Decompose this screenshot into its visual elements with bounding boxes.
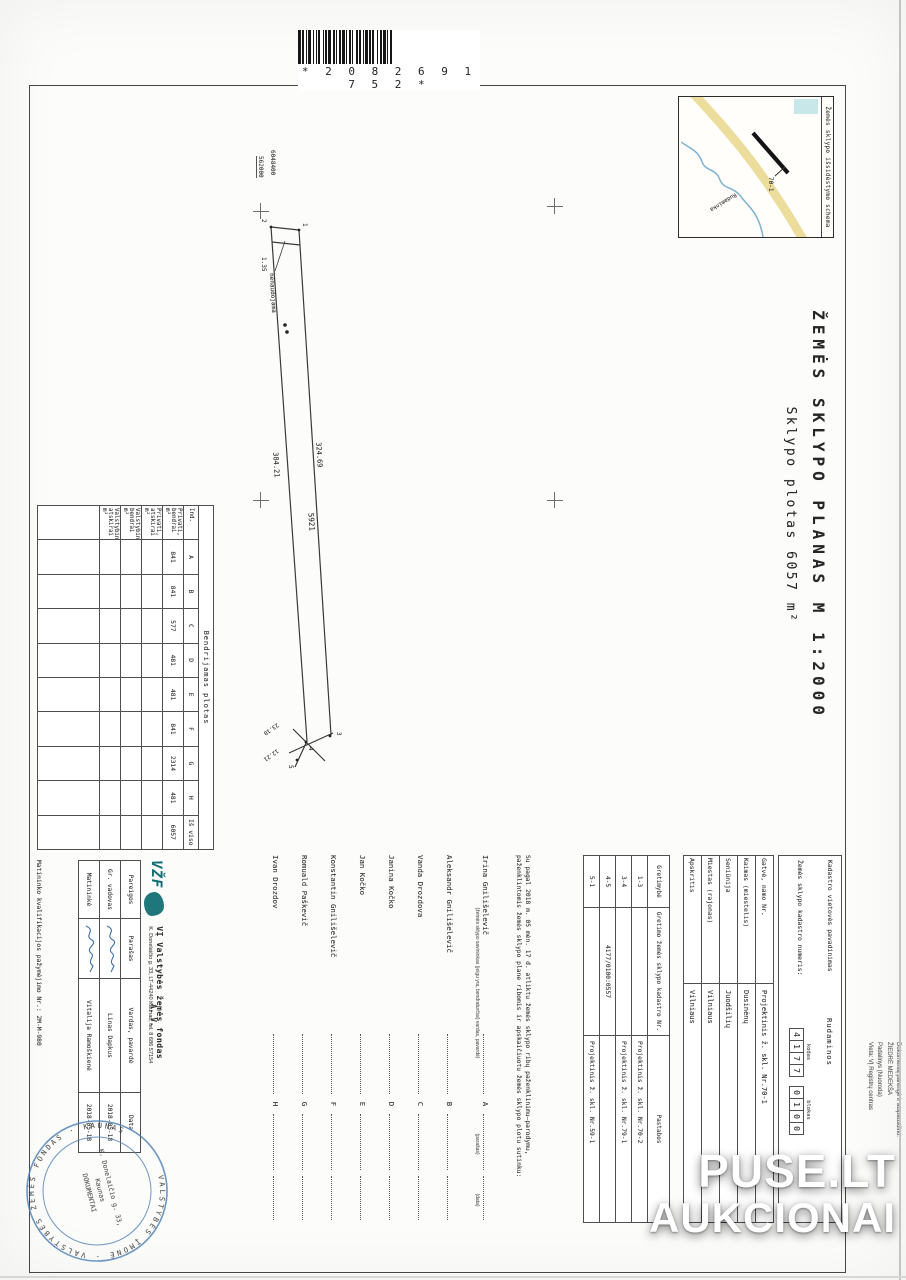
area-empty-cell xyxy=(38,609,100,643)
area-value: 481 xyxy=(163,643,184,677)
area-value: 841 xyxy=(163,574,184,608)
area-table-row: Privati, bendrai m²841841577481481841231… xyxy=(163,506,184,850)
area-table-row xyxy=(38,506,100,850)
area-table-row: Ind.ABCDEFGHIš viso xyxy=(184,506,199,850)
consent-row: Irina GnilišelevičA xyxy=(481,855,510,1223)
parcel-length-top: 324.69 xyxy=(314,442,324,468)
area-part-letter: E xyxy=(184,677,199,711)
barcode-bars xyxy=(298,30,480,64)
area-total-value: 6057 xyxy=(163,815,184,849)
firm-header: Pareigos xyxy=(121,861,141,919)
consent-row: Romuald PaškevičG xyxy=(300,855,329,1223)
area-empty-cell xyxy=(142,746,163,780)
firm-header: Vardas, pavardė xyxy=(121,979,141,1093)
adjacency-cadnum xyxy=(616,908,632,1036)
area-part-letter: H xyxy=(184,781,199,815)
adjacency-id: 5-1 xyxy=(584,856,600,908)
firm-titles: VĮ Valstybės žemės fondas K. Donelaičio … xyxy=(147,926,164,1063)
area-empty-cell xyxy=(121,643,142,677)
area-row-label: Valstybinė, bendrai m² xyxy=(121,506,142,540)
area-row-label: Valstybinė, atskirai m² xyxy=(100,506,121,540)
consent-letter: B xyxy=(445,1097,454,1111)
dotted-line xyxy=(447,1176,457,1220)
watermark-line2: AUKCIONAI xyxy=(560,1196,896,1240)
page-edge-right xyxy=(899,0,901,1280)
consent-letter: D xyxy=(387,1097,396,1111)
plan-document: Dokumentą parengė ir atspausdino:ŽIEDRĖ … xyxy=(0,0,906,1280)
blokas-label: blokas xyxy=(805,1100,811,1119)
seal-center-text: K. Donelaičio g. 33,KaunasDOKUMENTAI xyxy=(76,1148,124,1232)
parcel-small-dim: 1.35 xyxy=(260,257,267,272)
dotted-line xyxy=(331,1176,341,1220)
area-empty-cell xyxy=(142,540,163,574)
area-breakdown-table: Bendrijamas plotasInd.ABCDEFGHIš visoPri… xyxy=(37,505,214,850)
area-empty-cell xyxy=(142,781,163,815)
location-inset: Žemės sklypo išsidėstymo schema 70-1 Rud… xyxy=(678,96,834,238)
area-empty-cell xyxy=(100,712,121,746)
parcel-end-ext xyxy=(295,741,307,767)
area-empty-cell xyxy=(100,677,121,711)
terrain-symbol xyxy=(285,330,289,334)
boundary-point xyxy=(270,226,273,229)
area-col-ind: Ind. xyxy=(184,506,199,540)
boundary-point xyxy=(305,741,308,744)
inset-map: 70-1 Rudaminka xyxy=(681,97,821,237)
consent-name: Jan Kočko xyxy=(358,855,367,1031)
consent-name: Ivan Drozdov xyxy=(271,855,280,1031)
address-label: Apskritis xyxy=(684,856,702,984)
boundary-point xyxy=(296,759,299,762)
cadastre-vietove-value: Rudaminos xyxy=(826,1018,835,1066)
firm-signature-cell xyxy=(100,919,121,979)
boundary-point xyxy=(329,735,332,738)
area-part-letter: B xyxy=(184,574,199,608)
consent-letter: E xyxy=(358,1097,367,1111)
area-empty-cell xyxy=(38,781,100,815)
title-block: ŽEMĖS SKLYPO PLANAS M 1:2000 Sklypo plot… xyxy=(783,280,828,750)
dotted-line xyxy=(360,1034,370,1094)
consent-intro-line2: paženklintomis žemės sklypo plane ribomi… xyxy=(513,855,522,1223)
kodas-boxes: 4177 xyxy=(789,1028,804,1076)
dotted-line xyxy=(273,1114,283,1170)
area-empty-cell xyxy=(142,677,163,711)
area-empty-cell xyxy=(100,746,121,780)
parcel-unused-label: nenaudojama xyxy=(268,273,278,313)
adjacency-id: 4-5 xyxy=(600,856,616,908)
consent-name: Romuald Paškevič xyxy=(300,855,309,1031)
point-label: 5 xyxy=(287,765,294,769)
area-table-row: Valstybinė, bendrai m² xyxy=(121,506,142,850)
area-empty-cell xyxy=(121,574,142,608)
parcel-end-cross xyxy=(293,729,325,761)
area-empty-cell xyxy=(38,677,100,711)
area-empty-cell xyxy=(38,540,100,574)
parcel-left-cap xyxy=(271,227,299,230)
dotted-line xyxy=(302,1034,312,1094)
dotted-line xyxy=(483,1114,493,1170)
address-label: Kaimas (miestelis) xyxy=(738,856,756,984)
pond-shape xyxy=(794,99,818,114)
area-empty-cell xyxy=(38,643,100,677)
adjacency-cadnum xyxy=(632,908,648,1036)
firm-name: VĮ Valstybės žemės fondas xyxy=(155,926,164,1063)
dotted-line xyxy=(273,1176,283,1220)
dotted-line xyxy=(447,1034,457,1094)
area-empty-cell xyxy=(142,815,163,849)
dotted-line xyxy=(483,1176,493,1220)
address-label: Seniūnija xyxy=(720,856,738,984)
adjacency-cadnum: 4177/0100:0557 xyxy=(600,908,616,1036)
firm-address: K. Donelaičio g. 33, LT-44240 Kaunas, te… xyxy=(147,926,153,1063)
dotted-line xyxy=(302,1176,312,1220)
consent-letter: H xyxy=(271,1097,280,1111)
dotted-line xyxy=(360,1176,370,1220)
area-empty-cell xyxy=(100,540,121,574)
barcode: * 2 0 8 2 6 9 1 7 5 2 * xyxy=(298,30,480,91)
consent-name: Aleksandr Gnilišelevič xyxy=(445,855,454,1031)
northing-label: 6048400 xyxy=(269,150,276,175)
dotted-line xyxy=(331,1034,341,1094)
kodas-label: kodas xyxy=(805,1044,811,1060)
firm-row: MatininkėVitalija Ramoškienė2018-05-18 xyxy=(79,861,100,1153)
area-part-letter: F xyxy=(184,712,199,746)
dotted-line xyxy=(273,1034,283,1094)
consent-name: Vanda Drozdova xyxy=(416,855,425,1031)
owners-consent-block: Su pagal 2018 m. 05 mėn. 17 d. atliktu ž… xyxy=(271,855,532,1223)
dotted-line xyxy=(447,1114,457,1170)
river-label: Rudaminka xyxy=(709,191,737,212)
area-empty-cell xyxy=(121,609,142,643)
inset-plot-tick xyxy=(775,167,785,176)
firm-person: Linas Dapkus xyxy=(100,979,121,1093)
area-table-row: Bendrijamas plotas xyxy=(199,506,214,850)
inset-caption: Žemės sklypo išsidėstymo schema xyxy=(821,97,833,237)
page-edge-bottom xyxy=(0,1276,906,1278)
consent-intro-line1: Su pagal 2018 m. 05 mėn. 17 d. atliktu ž… xyxy=(523,855,532,1223)
blokas-boxes: 0100 xyxy=(789,1086,804,1134)
area-empty-cell xyxy=(100,781,121,815)
signature-mark xyxy=(103,924,119,974)
area-row-label: Privati, bendrai m² xyxy=(163,506,184,540)
firm-role: Gr. vadovas xyxy=(100,861,121,919)
area-empty-cell xyxy=(142,574,163,608)
area-empty-cell xyxy=(142,643,163,677)
grid-cross xyxy=(547,492,563,508)
owner-caption: (žemės sklypo savininkas (jeigu yra, ben… xyxy=(474,855,480,1111)
dotted-line xyxy=(360,1114,370,1170)
kodas-digit: 7 xyxy=(789,1064,804,1077)
terrain-symbol xyxy=(283,323,287,327)
firm-header: Parašas xyxy=(121,919,141,979)
point-label: 2 xyxy=(260,219,267,223)
area-part-letter: G xyxy=(184,746,199,780)
parcel-end-dim: 12.21 xyxy=(262,747,279,761)
dotted-line xyxy=(302,1114,312,1170)
dotted-line xyxy=(483,1034,493,1094)
dotted-line xyxy=(418,1034,428,1094)
plan-title: ŽEMĖS SKLYPO PLANAS M 1:2000 xyxy=(809,280,828,750)
road-line xyxy=(691,97,805,237)
area-value: 841 xyxy=(163,540,184,574)
vzf-logo-text: VŽF xyxy=(148,860,164,888)
adjacency-id: 1-3 xyxy=(632,856,648,908)
area-value: 841 xyxy=(163,712,184,746)
address-label: Miestas (rajonas) xyxy=(702,856,720,984)
point-label: 1 xyxy=(301,223,308,227)
cadastre-vietove-label: Kadastro vietovės pavadinimas xyxy=(826,860,834,1018)
area-part-letter: D xyxy=(184,643,199,677)
scanned-page: Dokumentą parengė ir atspausdino:ŽIEDRĖ … xyxy=(0,0,906,1280)
area-empty-cell xyxy=(142,609,163,643)
dotted-line xyxy=(331,1114,341,1170)
address-label: Gatvė, namo Nr. xyxy=(756,856,774,984)
blokas-digit: 0 xyxy=(789,1122,804,1135)
dotted-line xyxy=(389,1034,399,1094)
area-empty-cell xyxy=(100,574,121,608)
parcel-area-label: 5921 xyxy=(306,513,316,532)
watermark: PUSE.LT AUKCIONAI xyxy=(560,1148,896,1240)
parcel-end-dim: 23.10 xyxy=(262,721,279,735)
area-table-row: Privati, atskirai m² xyxy=(142,506,163,850)
barcode-digits: * 2 0 8 2 6 9 1 7 5 2 * xyxy=(298,65,480,91)
area-empty-cell xyxy=(121,677,142,711)
parcel-plan: 1 2 3 4 5 324.69 384.21 5921 nenaudojama… xyxy=(201,175,371,815)
inset-plot-label: 70-1 xyxy=(767,177,774,192)
kodas-group: kodas 4177 xyxy=(789,1028,811,1076)
consent-row: Ivan DrozdovH xyxy=(271,855,300,1223)
adjacency-header: Gretimybė xyxy=(648,856,670,908)
consent-name: Irina Gnilišelevič xyxy=(481,855,490,1031)
adjacency-id: 3-4 xyxy=(616,856,632,908)
consent-letter: F xyxy=(329,1097,338,1111)
area-empty-cell xyxy=(38,712,100,746)
blokas-group: blokas 0100 xyxy=(789,1086,811,1134)
area-empty-cell xyxy=(121,781,142,815)
consent-row: Jan KočkoE xyxy=(358,855,387,1223)
area-value: 2314 xyxy=(163,746,184,780)
barcode-bar xyxy=(392,30,395,64)
area-empty-cell xyxy=(100,643,121,677)
area-value: 577 xyxy=(163,609,184,643)
boundary-point xyxy=(298,229,301,232)
area-value: 481 xyxy=(163,781,184,815)
firm-role: Matininkė xyxy=(79,861,100,919)
area-row-label: Privati, atskirai m² xyxy=(142,506,163,540)
vzf-logo-mark xyxy=(144,892,164,916)
parcel-length-bottom: 384.21 xyxy=(271,452,281,478)
area-empty-cell xyxy=(100,609,121,643)
adjacency-cadnum xyxy=(584,908,600,1036)
consent-name: Janina Kočko xyxy=(387,855,396,1031)
parcel-inner-cap xyxy=(272,242,300,245)
consent-letter: G xyxy=(300,1097,309,1111)
watermark-line1: PUSE.LT xyxy=(560,1148,896,1196)
leader-line xyxy=(275,241,285,271)
signature-caption: (parašas) xyxy=(474,1111,480,1177)
area-empty-cell xyxy=(38,574,100,608)
point-label: 3 xyxy=(335,732,342,736)
plan-subtitle: Sklypo plotas 6057 m² xyxy=(783,280,798,750)
area-value: 481 xyxy=(163,677,184,711)
area-empty-cell xyxy=(142,712,163,746)
area-empty-cell xyxy=(38,815,100,849)
area-table-row: Valstybinė, atskirai m² xyxy=(100,506,121,850)
grid-cross xyxy=(547,198,563,214)
firm-signature-cell xyxy=(79,919,100,979)
consent-name: Konstantin Gnilišelevič xyxy=(329,855,338,1031)
area-empty-cell xyxy=(121,712,142,746)
dotted-line xyxy=(418,1176,428,1220)
area-empty-cell xyxy=(100,815,121,849)
signature-mark xyxy=(82,924,98,974)
area-empty-cell xyxy=(38,506,100,540)
parcel-top-edge xyxy=(299,230,331,735)
date-caption: (data) xyxy=(474,1177,480,1223)
consent-letter: A xyxy=(481,1097,490,1111)
area-total-header: Iš viso xyxy=(184,815,199,849)
area-empty-cell xyxy=(121,815,142,849)
dotted-line xyxy=(389,1176,399,1220)
area-part-letter: C xyxy=(184,609,199,643)
consent-row: Vanda DrozdovaC xyxy=(416,855,445,1223)
consent-row: Janina KočkoD xyxy=(387,855,416,1223)
dotted-line xyxy=(389,1114,399,1170)
consent-captions: (žemės sklypo savininkas (jeigu yra, ben… xyxy=(474,855,480,1223)
area-empty-cell xyxy=(121,540,142,574)
dotted-line xyxy=(418,1114,428,1170)
consent-rows: Irina GnilišelevičA(žemės sklypo savinin… xyxy=(271,855,510,1223)
adjacency-header: Gretimo žemės sklypo kadastro Nr. xyxy=(648,908,670,1036)
cadastre-number-label: Žemės sklypo kadastro numeris: xyxy=(796,860,804,1018)
area-part-letter: A xyxy=(184,540,199,574)
consent-row: Konstantin GnilišelevičF xyxy=(329,855,358,1223)
point-label: 4 xyxy=(307,747,314,751)
area-empty-cell xyxy=(38,746,100,780)
seal-place-mark: A. V. xyxy=(149,1004,158,1027)
area-empty-cell xyxy=(121,746,142,780)
area-table-title: Bendrijamas plotas xyxy=(199,506,214,850)
firm-person: Vitalija Ramoškienė xyxy=(79,979,100,1093)
consent-letter: C xyxy=(416,1097,425,1111)
consent-row: Aleksandr GnilišelevičB xyxy=(445,855,474,1223)
